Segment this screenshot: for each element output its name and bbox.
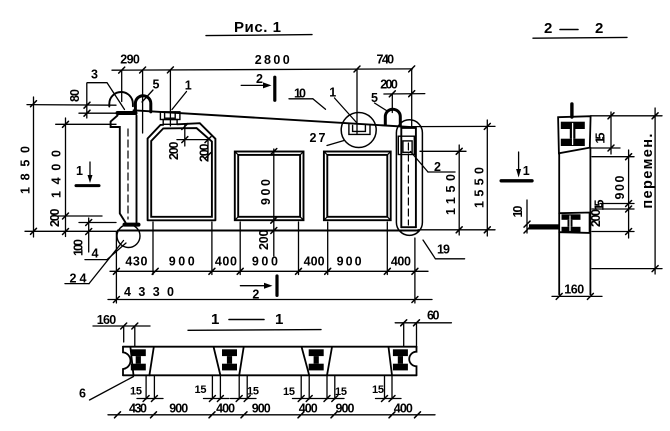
svg-text:430: 430 <box>125 254 147 268</box>
svg-text:900: 900 <box>613 175 627 199</box>
svg-text:3: 3 <box>91 68 98 82</box>
svg-text:6: 6 <box>79 387 86 401</box>
svg-text:900: 900 <box>252 402 271 416</box>
svg-text:1: 1 <box>185 79 192 93</box>
svg-text:15: 15 <box>130 386 142 398</box>
svg-text:1: 1 <box>211 311 219 328</box>
svg-text:400: 400 <box>394 402 413 416</box>
svg-text:900: 900 <box>169 402 188 416</box>
svg-text:400: 400 <box>391 254 411 268</box>
svg-text:400: 400 <box>216 402 235 416</box>
svg-text:15: 15 <box>335 386 347 398</box>
svg-text:2: 2 <box>252 287 259 301</box>
svg-text:1: 1 <box>523 164 530 178</box>
svg-text:430: 430 <box>129 402 147 416</box>
svg-text:19: 19 <box>437 243 450 257</box>
svg-text:2: 2 <box>256 72 263 86</box>
svg-text:400: 400 <box>299 402 318 416</box>
svg-text:200: 200 <box>589 209 603 227</box>
svg-text:900: 900 <box>252 254 278 268</box>
svg-text:2: 2 <box>544 20 552 37</box>
svg-text:15: 15 <box>372 384 384 396</box>
svg-text:4: 4 <box>92 247 99 261</box>
svg-text:5: 5 <box>153 78 160 92</box>
svg-text:1: 1 <box>275 311 283 328</box>
svg-text:740: 740 <box>377 52 395 66</box>
svg-text:100: 100 <box>72 239 86 256</box>
svg-text:1: 1 <box>329 86 336 100</box>
svg-text:перемен.: перемен. <box>640 134 656 209</box>
svg-text:200: 200 <box>167 141 181 160</box>
svg-text:15: 15 <box>594 133 608 144</box>
svg-text:160: 160 <box>564 282 584 296</box>
svg-text:2: 2 <box>595 20 603 37</box>
svg-text:10: 10 <box>511 205 525 217</box>
svg-text:160: 160 <box>97 313 117 327</box>
svg-text:900: 900 <box>336 402 355 416</box>
svg-text:Рис. 1: Рис. 1 <box>234 19 281 36</box>
svg-text:400: 400 <box>304 254 325 268</box>
svg-text:900: 900 <box>259 179 273 205</box>
svg-text:400: 400 <box>215 254 237 268</box>
svg-text:200: 200 <box>48 208 62 227</box>
svg-text:200: 200 <box>380 77 398 91</box>
svg-text:1: 1 <box>76 164 83 178</box>
svg-text:900: 900 <box>337 254 362 268</box>
svg-text:290: 290 <box>120 53 140 67</box>
svg-text:15: 15 <box>247 386 259 398</box>
svg-text:60: 60 <box>427 309 440 323</box>
svg-text:15: 15 <box>195 384 207 396</box>
svg-text:15: 15 <box>593 200 607 211</box>
svg-text:15: 15 <box>283 386 295 398</box>
svg-text:80: 80 <box>68 89 82 102</box>
svg-text:200: 200 <box>198 143 212 162</box>
svg-text:200: 200 <box>257 229 271 250</box>
svg-text:900: 900 <box>169 254 195 268</box>
